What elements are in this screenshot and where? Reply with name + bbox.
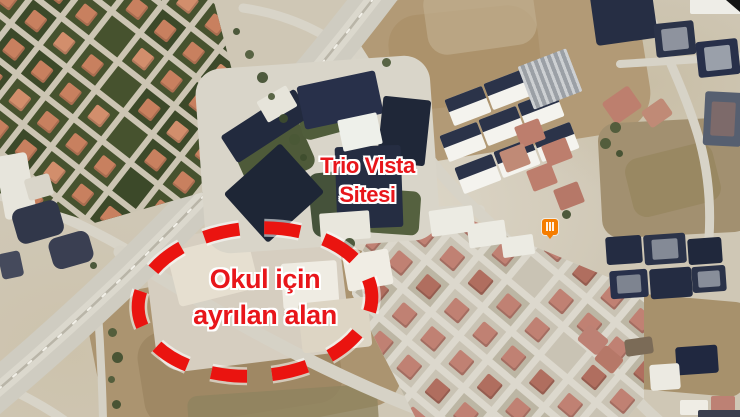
corner-glyph [726, 0, 740, 12]
area-label-line2: ayrılan alan [155, 297, 375, 333]
site-label: Trio Vista Sitesi [280, 151, 455, 209]
site-label-line1: Trio Vista [280, 151, 455, 180]
area-label-line1: Okul için [155, 261, 375, 297]
area-label: Okul için ayrılan alan [155, 261, 375, 333]
site-label-line2: Sitesi [280, 180, 455, 209]
satellite-map: Trio Vista Sitesi Okul için ayrılan alan [0, 0, 740, 417]
